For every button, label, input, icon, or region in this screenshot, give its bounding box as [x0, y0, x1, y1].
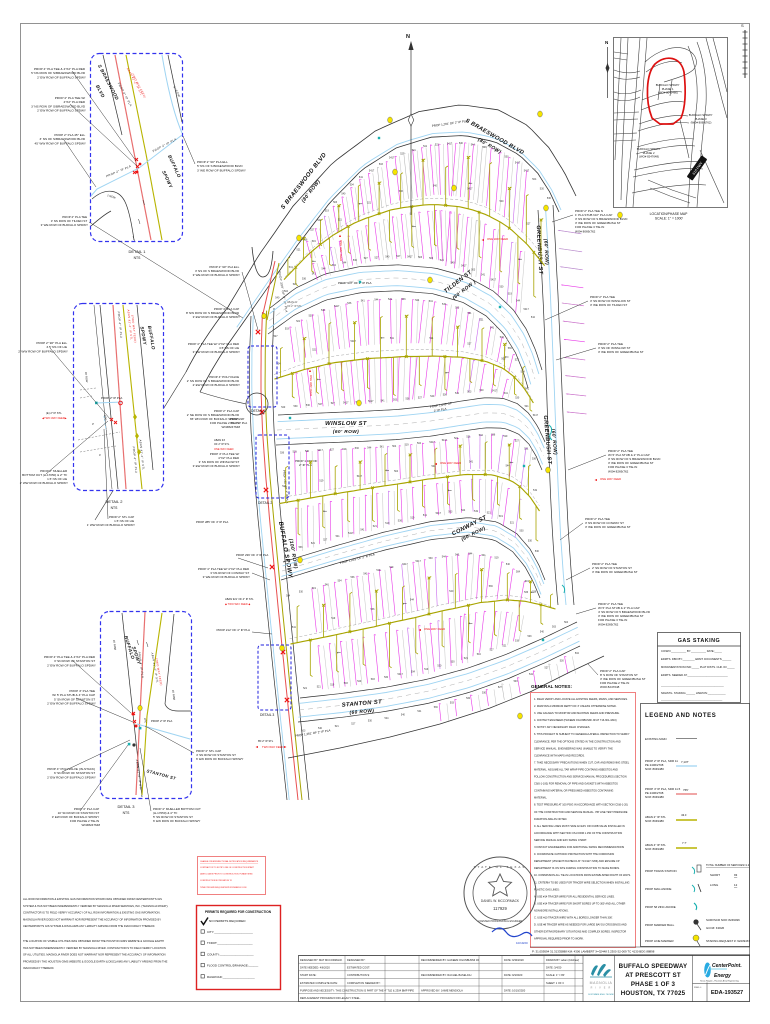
svg-text:541: 541: [317, 219, 322, 222]
svg-text:541: 541: [455, 392, 460, 395]
svg-text:519: 519: [312, 240, 317, 243]
svg-text:PERMITS REQUIRED FOR CONSTRUCT: PERMITS REQUIRED FOR CONSTRUCTION: [205, 910, 272, 914]
svg-text:544: 544: [516, 300, 521, 303]
svg-text:541: 541: [360, 529, 365, 532]
svg-text:541: 541: [504, 392, 509, 395]
svg-text:527: 527: [293, 283, 298, 286]
svg-text:541: 541: [490, 327, 495, 330]
svg-text:540: 540: [357, 680, 362, 683]
svg-text:CITY:________________________: CITY:________________________: [207, 930, 253, 934]
svg-text:519: 519: [325, 210, 330, 213]
svg-text:521: 521: [312, 349, 317, 352]
svg-text:530: 530: [540, 187, 545, 190]
svg-text:11. CRITERIA TO BE USED FOR TR: 11. CRITERIA TO BE USED FOR TRACER WIRE …: [534, 880, 629, 884]
svg-text:521: 521: [468, 312, 473, 315]
svg-text:765': 765': [683, 788, 689, 792]
svg-text:504: 504: [392, 445, 397, 448]
svg-text:527: 527: [515, 440, 520, 443]
svg-text:WINSLOW ST: WINSLOW ST: [325, 421, 367, 427]
svg-text:541: 541: [289, 266, 294, 269]
svg-text:540: 540: [325, 583, 330, 586]
svg-text:504: 504: [284, 290, 289, 293]
svg-text:503: 503: [448, 511, 453, 514]
svg-text:527: 527: [400, 153, 405, 156]
svg-text:MATERIAL. ASSUME ALL TAR WRAP: MATERIAL. ASSUME ALL TAR WRAP PIPE CONTA…: [534, 768, 618, 772]
svg-text:3. USE GAUGES TO MONITOR AND: 3. USE GAUGES TO MONITOR AND MAINTAIN FE…: [534, 711, 620, 715]
svg-text:519: 519: [319, 480, 324, 483]
svg-text:527: 527: [364, 257, 369, 260]
svg-text:540: 540: [506, 563, 511, 566]
svg-text:527: 527: [515, 358, 520, 361]
svg-text:503: 503: [501, 358, 506, 361]
svg-text:504: 504: [532, 178, 537, 181]
svg-text:540: 540: [451, 262, 456, 265]
svg-text:544: 544: [410, 599, 415, 602]
svg-text:DATE: 9/3/2020: DATE: 9/3/2020: [504, 973, 523, 977]
svg-text:GAS STAKING: GAS STAKING: [678, 638, 721, 644]
svg-text:ACCORDANCE WITH SECTION CS-FOR: ACCORDANCE WITH SECTION CS-FORM 1.150 OF…: [534, 831, 622, 835]
svg-text:530: 530: [294, 405, 299, 408]
svg-text:536: 536: [302, 277, 307, 280]
svg-text:CLEARANCE WITH MAPS AND RECORD: CLEARANCE WITH MAPS AND RECORDS.: [534, 753, 585, 757]
svg-text:527: 527: [323, 539, 328, 542]
svg-text:5417: 5417: [524, 308, 530, 311]
svg-text:530: 530: [437, 664, 442, 667]
svg-text:117929: 117929: [493, 906, 507, 911]
svg-text:EXISTING MAIN: EXISTING MAIN: [645, 737, 667, 741]
svg-text:CS(6-1-100) FOR REMOVAL OF PIP: CS(6-1-100) FOR REMOVAL OF PIPE AND GASK…: [534, 782, 618, 786]
svg-text:504: 504: [521, 371, 526, 374]
svg-text:DWG #:: DWG #:: [694, 987, 702, 989]
svg-text:503: 503: [371, 678, 376, 681]
svg-text:5417: 5417: [351, 340, 357, 343]
svg-text:519: 519: [525, 580, 530, 583]
svg-text:521: 521: [466, 435, 471, 438]
svg-text:541: 541: [423, 514, 428, 517]
svg-text:9. ALL SERVICE LINES MUST HAV: 9. ALL SERVICE LINES MUST HAVE AN EFV OR…: [534, 824, 625, 828]
svg-text:519: 519: [503, 435, 508, 438]
svg-text:541: 541: [292, 626, 297, 629]
svg-text:503: 503: [301, 729, 306, 732]
svg-text:527: 527: [274, 335, 279, 338]
svg-text:527: 527: [318, 403, 323, 406]
svg-text:530: 530: [306, 404, 311, 407]
svg-text:519: 519: [405, 444, 410, 447]
svg-text:544: 544: [479, 434, 484, 437]
svg-text:DETAIL 3: DETAIL 3: [260, 713, 274, 717]
svg-text:521: 521: [311, 542, 316, 545]
svg-text:536: 536: [434, 706, 439, 709]
svg-text:ALL ROW INFORMATION & EXISTING: ALL ROW INFORMATION & EXISTING GAS INFOR…: [23, 897, 162, 901]
svg-text:541: 541: [529, 673, 534, 676]
svg-text:530: 530: [515, 397, 520, 400]
svg-text:STAKING REQUEST #: 92439467: STAKING REQUEST #: 92439467: [706, 939, 750, 943]
svg-text:541: 541: [363, 573, 368, 576]
svg-text:CONSTRUCTION NOTIFICATION TO: CONSTRUCTION NOTIFICATION TO: [200, 879, 233, 882]
svg-text:DESIGNED BY: MAT MCCORMACK: DESIGNED BY: MAT MCCORMACK: [300, 958, 343, 962]
svg-text:TXNNOTIFICATIONS@CENTERPOINTEN: TXNNOTIFICATIONS@CENTERPOINTENERGY.COM: [200, 886, 247, 889]
svg-text:EDA-193527: EDA-193527: [711, 990, 743, 996]
svg-text:521: 521: [524, 448, 529, 451]
svg-text:5417: 5417: [402, 563, 408, 566]
svg-text:540: 540: [281, 406, 286, 409]
svg-text:CLEARANCE, PER THE OPTIONS STA: CLEARANCE, PER THE OPTIONS STATED IN THE…: [534, 739, 621, 743]
svg-text:536: 536: [508, 347, 513, 350]
svg-text:RECOMMENDED BY: HAKEEM OGUNBUN: RECOMMENDED BY: HAKEEM OGUNBUNMI JR: [421, 958, 479, 962]
svg-text:519: 519: [442, 303, 447, 306]
svg-text:CONTRACTOR TO NOTIFY ONE OF CO: CONTRACTOR TO NOTIFY ONE OF CONSTRUCTION…: [200, 866, 255, 869]
svg-text:SYSTEM & HAS NOT BEEN INDEPEN: SYSTEM & HAS NOT BEEN INDEPENDENTLY VERI…: [23, 904, 169, 908]
svg-text:DATE: 9/30/2020: DATE: 9/30/2020: [504, 958, 524, 962]
svg-text:PROP MARKER BALL: PROP MARKER BALL: [645, 923, 675, 927]
svg-text:5417: 5417: [429, 441, 435, 444]
svg-text:521: 521: [373, 525, 378, 528]
svg-text:PROP 4" PLA TEE & 4"X2" PLA RE: PROP 4" PLA TEE & 4"X2" PLA RED 5' NS RO…: [31, 67, 86, 79]
svg-text:504: 504: [332, 264, 337, 267]
svg-text:541: 541: [469, 461, 474, 464]
svg-text:504: 504: [338, 580, 343, 583]
svg-text:521: 521: [317, 685, 322, 688]
svg-text:541: 541: [390, 337, 395, 340]
svg-text:NON-BORE INSTALLATIONS.: NON-BORE INSTALLATIONS.: [534, 909, 569, 913]
svg-text:GENERAL NOTES:: GENERAL NOTES:: [531, 684, 572, 689]
svg-text:SHEET: 1 OF 3: SHEET: 1 OF 3: [546, 981, 564, 985]
svg-text:521: 521: [335, 725, 340, 728]
svg-text:PROP 5# ZINC ANODE: PROP 5# ZINC ANODE: [645, 905, 676, 909]
svg-text:ONE WAY FEED: ONE WAY FEED: [424, 627, 445, 631]
svg-text:527: 527: [331, 402, 336, 405]
svg-text:LICENSED PROFESSIONAL ENGINEER: LICENSED PROFESSIONAL ENGINEER: [478, 920, 523, 923]
svg-text:ABAN 2" IP STL NO#: 8049480: ABAN 2" IP STL NO#: 8049480: [645, 815, 667, 823]
svg-text:504: 504: [564, 621, 569, 624]
svg-text:540: 540: [540, 630, 545, 633]
svg-text:CONTRACTOR IS TO FIELD VERIFY: CONTRACTOR IS TO FIELD VERIFY ACCURACY O…: [23, 911, 161, 915]
svg-text:530: 530: [384, 676, 389, 679]
svg-text:519: 519: [410, 517, 415, 520]
svg-text:536: 536: [347, 302, 352, 305]
svg-text:519: 519: [474, 510, 479, 513]
svg-text:DETAIL 3: DETAIL 3: [118, 804, 136, 809]
svg-text:SERVICE MANUAL. ENGINEERING WA: SERVICE MANUAL. ENGINEERING WAS UNABLE T…: [534, 746, 613, 750]
svg-text:8. TEST PRESSURE AT 100 PSIG: 8. TEST PRESSURE AT 100 PSIG IN ACCORDAN…: [534, 803, 628, 807]
svg-text:519: 519: [515, 639, 520, 642]
svg-text:503: 503: [552, 626, 557, 629]
svg-text:MAGNOLIA RIVER DOES NOT WARRAN: MAGNOLIA RIVER DOES NOT WARRANT NOR REPR…: [23, 917, 161, 921]
svg-text:RECOMMENDED BY: RACHEL BASELIC: RECOMMENDED BY: RACHEL BASELICH: [421, 973, 471, 977]
svg-text:503: 503: [418, 256, 423, 259]
svg-text:541: 541: [282, 485, 287, 488]
svg-text:5417: 5417: [442, 439, 448, 442]
svg-text:REPLACEMENT PROGRAM FOR LEGACY: REPLACEMENT PROGRAM FOR LEGACY STEEL.: [300, 996, 361, 1000]
svg-text:519: 519: [533, 489, 538, 492]
svg-text:4. CONTACT ENGINEER (HAKEEM O: 4. CONTACT ENGINEER (HAKEEM OGUNBUNMI JR…: [534, 718, 617, 722]
svg-text:536: 536: [524, 591, 529, 594]
svg-text:PLASTIC GAS LINES:: PLASTIC GAS LINES:: [534, 887, 560, 891]
svg-text:PROVIDED BY THE HOUSTON GIMS W: PROVIDED BY THE HOUSTON GIMS WEBSITE & G…: [23, 959, 168, 963]
svg-text:503: 503: [393, 399, 398, 402]
svg-text:=CONTACT ENGINEERING FOR ADDIT: =CONTACT ENGINEERING FOR ADDITIONAL SIZI…: [534, 845, 624, 849]
svg-text:5417: 5417: [461, 264, 467, 267]
svg-text:HOUSTON, TX 77025: HOUSTON, TX 77025: [621, 990, 686, 997]
svg-text:530: 530: [305, 450, 310, 453]
svg-text:◆ TWO WAY FEED ◆: ◆ TWO WAY FEED ◆: [225, 602, 251, 606]
svg-text:5417: 5417: [334, 305, 340, 308]
svg-text:ABAN 34': ABAN 34': [214, 438, 226, 442]
svg-text:5. NOTIFY ANY NECESSARY FIEL: 5. NOTIFY ANY NECESSARY FIELD CHANGES.: [534, 725, 590, 729]
svg-text:1. FIELD VERIFY AND LOCATE AL: 1. FIELD VERIFY AND LOCATE ALL EXISTING …: [534, 697, 628, 701]
svg-text:______________________________: ________________________________________…: [660, 698, 723, 701]
svg-text:536: 536: [547, 197, 552, 200]
svg-text:536: 536: [398, 519, 403, 522]
svg-text:P: 31.059594 31.31335888 KM: P: 31.059594 31.31335888 KM: 4306 LAMBER…: [532, 950, 655, 954]
svg-text:540: 540: [318, 727, 323, 730]
svg-text:544: 544: [471, 144, 476, 147]
svg-text:503: 503: [455, 307, 460, 310]
svg-text:530: 530: [321, 309, 326, 312]
svg-text:530: 530: [466, 697, 471, 700]
svg-text:OF ALL UTILITIES. MAGNOLIA RIV: OF ALL UTILITIES. MAGNOLIA RIVER DOES NO…: [23, 953, 166, 957]
svg-text:MONUMENTATION FND:_____ PLAT: MONUMENTATION FND:_____ PLAT DISTS. CHK.…: [661, 665, 735, 669]
svg-text:536: 536: [489, 585, 494, 588]
svg-text:PROP MAG ANODE: PROP MAG ANODE: [645, 887, 672, 891]
svg-text:DESIGNED BY:: DESIGNED BY:: [347, 958, 366, 962]
svg-text:STATE OF TEXAS: STATE OF TEXAS: [474, 865, 527, 869]
svg-text:DETAIL 2: DETAIL 2: [106, 499, 124, 504]
svg-text:ESTIMATED COST:: ESTIMATED COST:: [347, 966, 370, 970]
svg-text:CenterPoint.: CenterPoint.: [712, 963, 742, 969]
svg-text:540: 540: [500, 336, 505, 339]
svg-text:521: 521: [303, 687, 308, 690]
svg-text:PROP TRANS STATION: PROP TRANS STATION: [645, 869, 677, 873]
svg-text:COMPLETION NEEDED BY:: COMPLETION NEEDED BY:: [347, 981, 381, 985]
svg-text:5417: 5417: [398, 673, 404, 676]
svg-text:10. COMMISSION ALL TIE-IN LOCA: 10. COMMISSION ALL TIE-IN LOCATIONS FROM…: [534, 873, 631, 877]
svg-text:5417: 5417: [368, 400, 374, 403]
svg-text:521: 521: [454, 437, 459, 440]
svg-text:ONE WAY FEED: ONE WAY FEED: [339, 240, 343, 261]
svg-text:DETAIL 2: DETAIL 2: [258, 501, 272, 505]
svg-text:DATE NEEDED: 4/6/2020: DATE NEEDED: 4/6/2020: [300, 966, 330, 970]
svg-text:PROP 285' OF 4" IP PLA: PROP 285' OF 4" IP PLA: [196, 520, 228, 524]
svg-text:C. USE #10 TRACER WIRE WITH AL: C. USE #10 TRACER WIRE WITH ALL BORES LO…: [534, 916, 613, 920]
svg-text:5417: 5417: [491, 279, 497, 282]
svg-text:504: 504: [417, 442, 422, 445]
svg-text:CONTAINING MATERIAL OR PRESUME: CONTAINING MATERIAL OR PRESUMED ASBESTOS…: [534, 789, 613, 793]
svg-text:OF 2" IP STL: OF 2" IP STL: [214, 442, 230, 446]
svg-text:N: N: [406, 34, 410, 40]
svg-text:530: 530: [353, 259, 358, 262]
svg-text:527: 527: [375, 256, 380, 259]
svg-text:5417: 5417: [416, 560, 422, 563]
svg-text:EDMTS. NEEDED AT:_____________: EDMTS. NEEDED AT:_______________________…: [661, 673, 728, 677]
svg-text:503: 503: [344, 682, 349, 685]
svg-text:SCALE: 1" = 80': SCALE: 1" = 80': [546, 973, 565, 977]
svg-text:CONTRIBUTION $:: CONTRIBUTION $:: [347, 973, 370, 977]
svg-text:FOLLOW CONSTRUCTION AND SERVIC: FOLLOW CONSTRUCTION AND SERVICE MANUAL P…: [534, 775, 627, 779]
svg-text:540: 540: [455, 554, 460, 557]
svg-text:ONE WAY FEED: ONE WAY FEED: [214, 447, 234, 451]
svg-text:519: 519: [331, 617, 336, 620]
svg-text:PHASE 1 OF 3: PHASE 1 OF 3: [631, 981, 676, 988]
svg-text:504: 504: [350, 184, 355, 187]
svg-text:ONE WAY FEED: ONE WAY FEED: [487, 237, 508, 241]
svg-text:540: 540: [449, 590, 454, 593]
svg-text:A. USE #14 TRACER WIRE FOR ALL: A. USE #14 TRACER WIRE FOR ALL RESIDENTI…: [534, 894, 615, 898]
svg-text:9. COORDINATE CATHODIC PROTECT: 9. COORDINATE CATHODIC PROTECTION WITH T…: [534, 852, 614, 856]
svg-text:DATE 10 DAYS PRIOR TO CONSTRUC: DATE 10 DAYS PRIOR TO CONSTRUCTION. PLEA…: [200, 873, 253, 876]
svg-text:GCO#: K3026: GCO#: K3026: [706, 926, 725, 930]
svg-text:541: 541: [359, 176, 364, 179]
svg-text:504: 504: [411, 671, 416, 674]
svg-text:519: 519: [499, 515, 504, 518]
svg-text:43.1': 43.1': [681, 813, 688, 817]
svg-text:504: 504: [516, 571, 521, 574]
svg-text:10/19/20: 10/19/20: [516, 941, 528, 945]
svg-text:521: 521: [487, 512, 492, 515]
svg-text:540: 540: [401, 714, 406, 717]
svg-text:7. TAKE NECESSARY PRECAUTIONS: 7. TAKE NECESSARY PRECAUTIONS WHEN CUT, …: [534, 760, 630, 764]
svg-text:536: 536: [371, 608, 376, 611]
svg-text:DRAWN BY: adam (brishaw): DRAWN BY: adam (brishaw): [546, 958, 579, 962]
svg-text:5417: 5417: [436, 512, 442, 515]
svg-text:541: 541: [312, 273, 317, 276]
svg-text:521: 521: [479, 318, 484, 321]
svg-text:527: 527: [330, 449, 335, 452]
svg-text:521: 521: [297, 248, 302, 251]
svg-text:5417: 5417: [492, 390, 498, 393]
svg-text:DETAIL 1: DETAIL 1: [129, 249, 147, 254]
svg-text:544: 544: [385, 717, 390, 720]
svg-text:NTS: NTS: [111, 506, 119, 510]
svg-text:OF 4" IP PLA: OF 4" IP PLA: [230, 421, 247, 425]
svg-text:536: 536: [443, 394, 448, 397]
svg-text:536: 536: [406, 398, 411, 401]
svg-text:536: 536: [494, 150, 499, 153]
svg-text:504: 504: [286, 594, 291, 597]
svg-text:541: 541: [481, 274, 486, 277]
svg-text:ESTIMATED COMPLETE DATE:: ESTIMATED COMPLETE DATE:: [300, 981, 338, 985]
svg-text:527: 527: [526, 222, 531, 225]
svg-text:519: 519: [285, 327, 290, 330]
svg-text:OF THE CONSTRUCTION AND SERVIC: OF THE CONSTRUCTION AND SERVICE MANUAL. …: [534, 810, 628, 814]
svg-text:5417: 5417: [407, 255, 413, 258]
svg-text:◀TWO WAY FEED▶: ◀TWO WAY FEED▶: [42, 416, 68, 420]
svg-text:THE LOCATION OF VISIBLE UTILIT: THE LOCATION OF VISIBLE UTILITIES WAS OB…: [23, 939, 164, 943]
svg-text:521: 521: [464, 657, 469, 660]
svg-text:541: 541: [423, 145, 428, 148]
svg-text:519: 519: [385, 522, 390, 525]
svg-text:7.7': 7.7': [682, 841, 687, 845]
svg-text:5417: 5417: [515, 161, 521, 164]
svg-text:541: 541: [381, 399, 386, 402]
svg-text:541: 541: [380, 446, 385, 449]
svg-text:85'-2" IP STL: 85'-2" IP STL: [258, 739, 274, 743]
svg-text:519: 519: [342, 448, 347, 451]
svg-text:INACCURACY THEREOF.: INACCURACY THEREOF.: [23, 966, 54, 970]
svg-text:519: 519: [389, 566, 394, 569]
svg-text:12: 12: [734, 883, 738, 887]
svg-text:S: S: [741, 23, 744, 28]
svg-text:536: 536: [303, 239, 308, 242]
svg-text:540: 540: [275, 297, 280, 300]
svg-text:(E) 2" IP STL: (E) 2" IP STL: [46, 411, 62, 415]
svg-text:NTS: NTS: [134, 256, 142, 260]
svg-text:530: 530: [459, 142, 464, 145]
svg-text:CENTERPOINT'S GIS SYSTEM & DIS: CENTERPOINT'S GIS SYSTEM & DISCLAIMS ANY…: [23, 924, 155, 928]
svg-text:527: 527: [498, 686, 503, 689]
svg-text:544: 544: [531, 316, 536, 319]
svg-text:LOCATION/PHASE MAP SCALE: 1" =: LOCATION/PHASE MAP SCALE: 1" = 1000': [650, 212, 689, 220]
svg-text:503: 503: [333, 201, 338, 204]
svg-text:MAGNOLIA: MAGNOLIA: [590, 981, 613, 985]
svg-text:LEGEND AND NOTES: LEGEND AND NOTES: [645, 713, 716, 719]
svg-text:544: 544: [374, 299, 379, 302]
svg-text:530: 530: [299, 591, 304, 594]
svg-text:530: 530: [429, 557, 434, 560]
svg-text:503: 503: [467, 391, 472, 394]
svg-text:LONG: LONG: [710, 883, 719, 887]
svg-text:TWO WAY FEED: TWO WAY FEED: [262, 745, 284, 749]
svg-text:MATERIAL.: MATERIAL.: [534, 796, 548, 800]
svg-text:5417: 5417: [467, 188, 473, 191]
svg-text:536: 536: [402, 298, 407, 301]
svg-text:NTS: NTS: [123, 811, 131, 815]
svg-text:521: 521: [440, 259, 445, 262]
svg-text:540: 540: [341, 192, 346, 195]
svg-text:521: 521: [296, 320, 301, 323]
svg-text:521: 521: [367, 201, 372, 204]
svg-text:519: 519: [312, 587, 317, 590]
svg-text:503: 503: [471, 269, 476, 272]
svg-text:503: 503: [483, 146, 488, 149]
svg-text:5417: 5417: [533, 414, 539, 417]
svg-text:544: 544: [442, 555, 447, 558]
svg-text:540: 540: [385, 256, 390, 259]
svg-text:536: 536: [532, 457, 537, 460]
svg-text:536: 536: [532, 590, 537, 593]
svg-text:SHORT: SHORT: [710, 873, 720, 877]
svg-text:DATE: 3/4/20: DATE: 3/4/20: [546, 966, 562, 970]
svg-text:521: 521: [388, 298, 393, 301]
svg-text:519: 519: [330, 684, 335, 687]
svg-text:PROP 4" POLYVALVE (IN-STACK) 6: PROP 4" POLYVALVE (IN-STACK) 6' SN ROW O…: [47, 767, 96, 779]
svg-text:PROP 937' OF 2" IP PLA: PROP 937' OF 2" IP PLA: [338, 281, 372, 285]
svg-text:5417: 5417: [357, 475, 363, 478]
svg-text:544: 544: [367, 446, 372, 449]
svg-text:519: 519: [508, 292, 513, 295]
svg-text:530: 530: [535, 550, 540, 553]
svg-text:ONE WAY FEED: ONE WAY FEED: [600, 477, 621, 481]
svg-text:536: 536: [491, 434, 496, 437]
svg-text:SURVSCR NO#: 8249496: SURVSCR NO#: 8249496: [706, 918, 740, 922]
svg-text:5417: 5417: [318, 449, 324, 452]
svg-text:ABAN 921' OF 4" IP STL: ABAN 921' OF 4" IP STL: [225, 597, 254, 601]
svg-text:EDMTS. DBO BY:________ EDMT.: EDMTS. DBO BY:________ EDMT. DOCUMENTS:_…: [661, 657, 732, 661]
svg-text:541: 541: [482, 554, 487, 557]
svg-text:541: 541: [525, 388, 530, 391]
svg-text:521: 521: [429, 337, 434, 340]
svg-text:527: 527: [418, 397, 423, 400]
svg-text:HAS NOT BEEN INDEPENDENTLY VER: HAS NOT BEEN INDEPENDENTLY VERIFIED BY M…: [23, 946, 166, 950]
svg-text:RAILROAD:____________________: RAILROAD:____________________: [207, 975, 255, 979]
svg-text:7,137': 7,137': [681, 760, 689, 764]
svg-text:504: 504: [394, 470, 399, 473]
svg-text:SERVICE MANUAL AND EFV SIZING: SERVICE MANUAL AND EFV SIZING CHART.: [534, 838, 587, 842]
svg-text:BUFFALO SPEEDWAY: BUFFALO SPEEDWAY: [619, 963, 688, 970]
svg-text:PROP 239' OF 4" IP PLA: PROP 239' OF 4" IP PLA: [236, 553, 268, 557]
svg-text:519: 519: [376, 569, 381, 572]
svg-text:PROP 212' OF 4" IP PLA: PROP 212' OF 4" IP PLA: [216, 628, 250, 632]
